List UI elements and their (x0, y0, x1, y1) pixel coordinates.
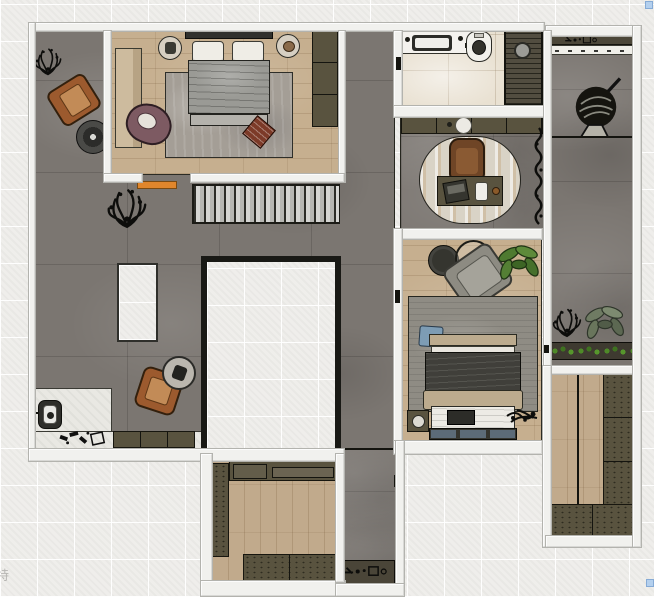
wall-bed1-right (338, 30, 346, 183)
closet-floor-divider (577, 374, 579, 504)
nightstand-left[interactable] (158, 36, 182, 60)
cabinet-basin-tap (447, 122, 452, 127)
desk[interactable] (437, 176, 503, 206)
nightstand-right-basket (283, 41, 295, 52)
wall-closet-r-left (542, 365, 552, 548)
wall-closet-r-top (545, 365, 642, 375)
second-bed-duvet (425, 352, 521, 392)
toilet[interactable] (466, 31, 492, 62)
selection-handle-bottom-right[interactable] (646, 579, 654, 587)
shower-drain (514, 42, 531, 59)
door-tick-bathroom (396, 57, 401, 70)
door-tick-balcony (544, 345, 549, 353)
wall-bed1-bottom-b (190, 173, 345, 183)
doormat (137, 181, 177, 189)
vanity-accessory-3 (405, 37, 410, 42)
bathroom-vanity[interactable] (401, 31, 475, 54)
side-table-2-item (171, 364, 188, 382)
counter-clutter (341, 562, 393, 581)
wall-left-outer (28, 22, 36, 462)
desk-chair[interactable] (449, 138, 485, 180)
laptop (442, 179, 469, 204)
wardrobe-top-shelf (272, 467, 334, 478)
toilet-seat (472, 40, 486, 55)
master-bed[interactable] (185, 30, 273, 126)
wall-bed2-top (393, 228, 543, 240)
fan-cabinet[interactable] (407, 410, 429, 432)
bench-cushion (460, 430, 485, 438)
desk-dish (492, 187, 500, 195)
wall-closet-b-left (200, 453, 213, 597)
bottom-closet-wardrobe-top[interactable] (229, 461, 336, 481)
bench-cushion (431, 430, 456, 438)
staircase[interactable] (192, 184, 340, 224)
cabinet-basin (455, 117, 472, 134)
study-cabinet-row[interactable] (401, 117, 543, 134)
corridor-floor-seam (343, 448, 397, 450)
bottom-closet-wardrobe-bottom[interactable] (243, 554, 336, 581)
dry-branch-decor (503, 392, 547, 440)
mug (475, 182, 488, 201)
second-bed-headboard (429, 334, 517, 346)
bed-tray (447, 410, 475, 425)
wall-intercom-device[interactable] (38, 400, 62, 429)
laptop-keys (447, 184, 465, 195)
wall-top-balcony (545, 25, 642, 37)
door-tick-bed2 (395, 290, 400, 303)
wall-balcony-divider (543, 30, 552, 375)
toilet-tank (474, 33, 484, 38)
right-closet-cabinet-column[interactable] (603, 374, 633, 506)
desk-chair-seat (456, 148, 478, 174)
vanity-sink (412, 35, 452, 51)
wall-corridor-right (395, 440, 405, 597)
nightstand-right[interactable] (276, 34, 300, 58)
wall-closet-r-bottom (545, 535, 642, 548)
master-wardrobe[interactable] (312, 31, 338, 127)
wall-bed2-left (393, 228, 403, 455)
small-floor-opening (117, 263, 158, 342)
hanging-egg-chair[interactable] (566, 74, 632, 140)
nightstand-left-lamp (165, 42, 176, 54)
table-fan (412, 415, 425, 428)
round-side-table-2[interactable] (162, 356, 196, 390)
large-floor-opening (201, 256, 341, 454)
balcony-floor-seam (550, 136, 634, 138)
wall-bottom-living (28, 448, 345, 462)
shower-area[interactable] (504, 28, 543, 106)
wall-bed1-left (103, 30, 112, 181)
selection-handle-top-right[interactable] (645, 1, 653, 9)
right-closet-cabinet-bottom[interactable] (551, 504, 633, 536)
scattered-shoes (56, 426, 114, 450)
wardrobe-top-clothes (233, 464, 267, 479)
wall-bath-bottom (393, 105, 545, 118)
mauve-armchair-cushion (135, 110, 160, 132)
intercom-button (47, 412, 54, 419)
vanity-accessory-1 (458, 36, 463, 41)
floorplan-canvas[interactable]: 特 (0, 0, 654, 597)
armchair-cushion (58, 83, 92, 118)
master-bed-duvet (188, 60, 270, 114)
planter-box (548, 342, 634, 360)
balcony-plant-sage (580, 298, 630, 346)
shoe-cabinet[interactable] (113, 431, 195, 448)
balcony-console-shelf (550, 45, 634, 55)
watermark-text: 特 (0, 565, 9, 584)
wall-closet-b-bottom (200, 580, 346, 597)
potted-plant-green[interactable] (494, 236, 544, 288)
wall-corridor-bottom (335, 583, 405, 597)
vanity-basin (415, 38, 449, 48)
wall-bed1-bottom-a (103, 173, 143, 183)
intercom-screen (43, 405, 57, 424)
wall-closet-b-right (335, 453, 345, 583)
wall-right-outer (632, 25, 642, 548)
bottom-closet-wardrobe-left[interactable] (212, 463, 229, 557)
wall-bed2-bottom (393, 440, 543, 455)
